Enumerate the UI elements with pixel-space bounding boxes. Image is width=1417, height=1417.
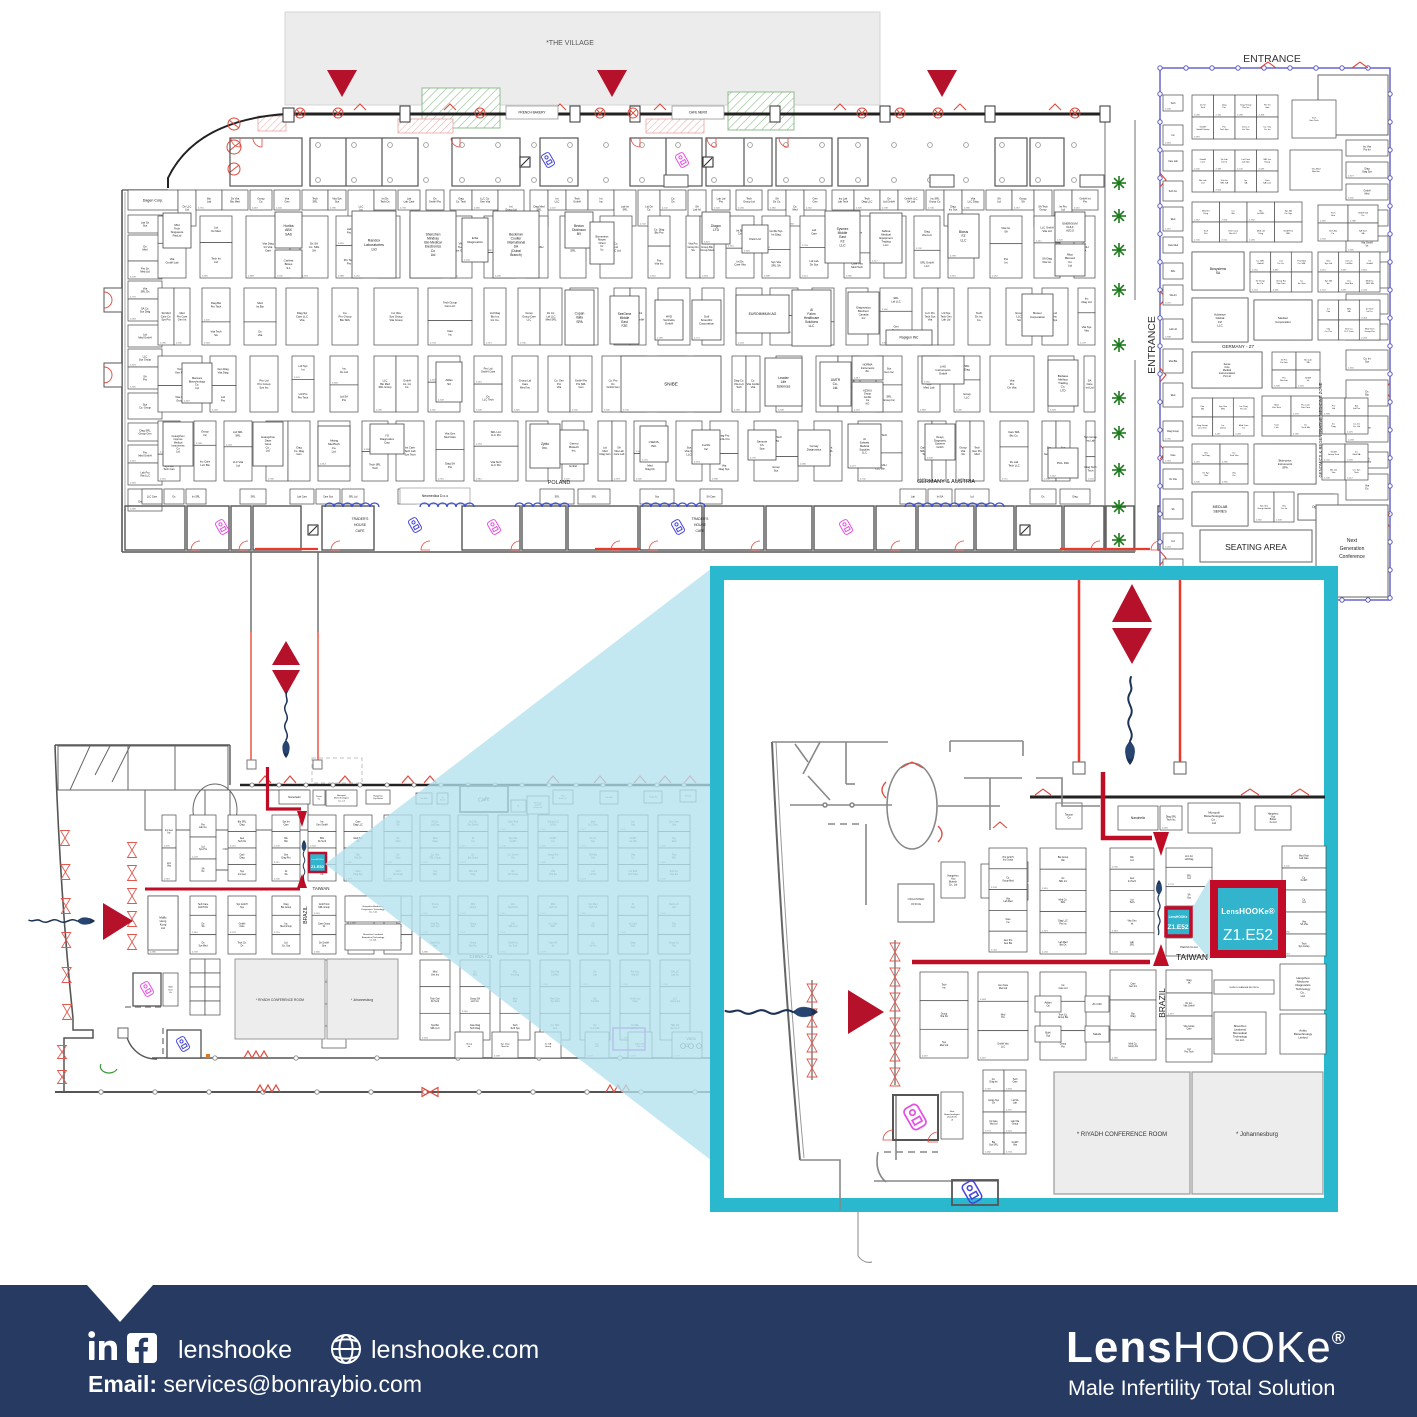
svg-text:Z-132: Z-132	[662, 208, 668, 210]
svg-text:ENTRANCE: ENTRANCE	[1243, 53, 1301, 65]
svg-text:LLC: LLC	[1001, 1047, 1006, 1049]
svg-text:Z-444: Z-444	[464, 260, 470, 262]
svg-text:Z-678: Z-678	[1293, 414, 1299, 416]
svg-text:Gen: Gen	[813, 200, 818, 204]
svg-text:Z-926: Z-926	[1348, 250, 1354, 252]
svg-text:Care: Care	[1013, 1081, 1019, 1084]
svg-text:Sys Vita: Sys Vita	[1260, 504, 1269, 507]
svg-text:Care: Care	[240, 854, 246, 857]
svg-text:Med GmbH: Med GmbH	[138, 336, 151, 340]
svg-text:Care: Care	[447, 329, 453, 333]
svg-text:Z-554: Z-554	[476, 444, 482, 446]
svg-text:SRL: SRL	[251, 495, 256, 498]
svg-text:Dx Ltd: Dx Ltd	[340, 370, 348, 374]
svg-text:Z-467: Z-467	[252, 208, 258, 210]
svg-text:Dx Int: Dx Int	[1200, 103, 1206, 106]
svg-text:Z-585: Z-585	[657, 338, 663, 340]
svg-text:Z-180: Z-180	[274, 879, 280, 881]
svg-text:GmbH: GmbH	[1301, 880, 1308, 882]
svg-text:Z-766: Z-766	[1112, 867, 1118, 869]
svg-text:Gene: Gene	[265, 442, 272, 446]
svg-text:Z-441: Z-441	[1088, 479, 1094, 481]
svg-text:Int Tech: Int Tech	[1128, 880, 1137, 883]
svg-text:GmbH Sys: GmbH Sys	[770, 229, 784, 233]
svg-text:Lab Med: Lab Med	[1004, 901, 1014, 903]
svg-text:Z-470: Z-470	[204, 319, 210, 321]
svg-text:Z-834: Z-834	[1006, 1089, 1012, 1091]
svg-text:Int SA: Int SA	[937, 495, 944, 498]
svg-text:Care Diag: Care Diag	[470, 1024, 481, 1027]
svg-text:Sys: Sys	[887, 367, 892, 371]
svg-text:Ltd Diag: Ltd Diag	[1185, 858, 1194, 861]
svg-text:Z-294: Z-294	[738, 208, 744, 210]
svg-text:Z-932: Z-932	[1249, 220, 1255, 222]
svg-text:Group SA: Group SA	[470, 997, 481, 1000]
svg-text:Int: Int	[1005, 261, 1008, 265]
svg-text:Ltd Sys: Ltd Sys	[299, 364, 309, 368]
svg-text:GmbH: GmbH	[1012, 1142, 1019, 1144]
svg-text:Int LLC: Int LLC	[1345, 259, 1352, 262]
svg-text:Diag Pro: Diag Pro	[282, 857, 292, 860]
svg-text:Diag: Diag	[964, 368, 970, 372]
svg-text:Gmbh: Gmbh	[936, 445, 944, 449]
svg-text:GmbH: GmbH	[569, 464, 577, 468]
svg-text:Z-408: Z-408	[476, 410, 482, 412]
svg-text:Group Pro: Group Pro	[1365, 330, 1376, 333]
svg-text:Tech Sys: Tech Sys	[1220, 129, 1230, 131]
svg-text:Bio Dx: Bio Dx	[1060, 945, 1068, 947]
svg-text:Z-910: Z-910	[192, 932, 198, 934]
svg-text:Male Infertility Total Solutio: Male Infertility Total Solution	[1068, 1376, 1335, 1400]
svg-text:Z-263: Z-263	[1165, 547, 1171, 549]
svg-text:Tech: Tech	[1171, 103, 1177, 105]
svg-text:INC.: INC.	[651, 444, 657, 448]
svg-text:Z-805: Z-805	[314, 952, 320, 954]
svg-text:GENOMICS & REGENERATIVE MEDICI: GENOMICS & REGENERATIVE MEDICINE ZONE	[1318, 382, 1323, 477]
svg-text:Pro: Pro	[448, 465, 453, 469]
svg-text:Z-966: Z-966	[422, 952, 428, 954]
svg-text:Co. Diag: Co. Diag	[654, 227, 665, 231]
svg-text:Ltd: Ltd	[221, 395, 225, 399]
svg-text:Z-469: Z-469	[1347, 460, 1353, 462]
svg-text:Z-807: Z-807	[184, 401, 190, 403]
svg-text:SRL: SRL	[570, 249, 576, 253]
svg-text:Ltd: Ltd	[1068, 264, 1072, 268]
svg-text:Vita Int: Vita Int	[1221, 179, 1228, 182]
svg-text:Co. Int: Co. Int	[1281, 507, 1288, 510]
svg-text:SRL Inc: SRL Inc	[1059, 881, 1068, 883]
svg-text:Group Inc: Group Inc	[883, 398, 895, 402]
svg-text:Z-888: Z-888	[338, 276, 344, 278]
svg-text:Group Tech: Group Tech	[1328, 453, 1340, 456]
svg-text:Dx LLC: Dx LLC	[1242, 126, 1250, 128]
svg-text:Tech Co.: Tech Co.	[237, 943, 246, 945]
svg-text:Inc Group: Inc Group	[1003, 859, 1014, 862]
svg-text:Z-318: Z-318	[130, 483, 136, 485]
svg-text:Z-241: Z-241	[642, 460, 648, 462]
svg-text:LLC: LLC	[862, 451, 867, 455]
svg-text:Z-541: Z-541	[1320, 290, 1326, 292]
svg-text:Care: Care	[1171, 454, 1177, 457]
svg-text:SRL: SRL	[1171, 271, 1176, 273]
svg-text:Care Ltd: Care Ltd	[1059, 987, 1069, 990]
svg-text:* RIYADH CONFERENCE ROOM: * RIYADH CONFERENCE ROOM	[256, 998, 304, 1002]
svg-text:Z-588: Z-588	[1324, 414, 1330, 416]
svg-text:Int Sys: Int Sys	[1203, 471, 1211, 474]
svg-text:S.L: S.L	[286, 266, 291, 270]
svg-text:Z-535: Z-535	[1194, 482, 1200, 484]
svg-text:Diag Sys: Diag Sys	[719, 467, 730, 471]
svg-text:Diagnostics: Diagnostics	[380, 437, 395, 441]
svg-text:Mall: Mall	[168, 987, 173, 989]
svg-text:Lab Tech: Lab Tech	[838, 200, 849, 204]
svg-text:Inc.: Inc.	[542, 446, 547, 450]
svg-text:Diag Tech: Diag Tech	[1085, 465, 1097, 469]
svg-text:Dx Tech: Dx Tech	[431, 1001, 440, 1003]
svg-text:LLC Care: LLC Care	[1344, 330, 1354, 333]
svg-text:SA Care: SA Care	[1263, 182, 1272, 185]
svg-text:Z-400: Z-400	[276, 208, 282, 210]
svg-text:Bio Group: Bio Group	[1058, 856, 1069, 859]
svg-text:Z-234: Z-234	[738, 343, 744, 345]
svg-text:Co. Group: Co. Group	[139, 406, 152, 410]
svg-text:Med Ltd: Med Ltd	[999, 987, 1008, 990]
svg-text:GmbH: GmbH	[1367, 263, 1374, 265]
svg-text:LLC Care: LLC Care	[147, 495, 158, 498]
svg-text:Diag: Diag	[284, 904, 289, 906]
svg-text:SRL GmbH: SRL GmbH	[920, 260, 934, 264]
svg-text:Tech Vita: Tech Vita	[1230, 454, 1240, 457]
svg-text:Tech Co.: Tech Co.	[1058, 1014, 1067, 1016]
svg-text:Biotec: Biotec	[1270, 818, 1277, 821]
svg-text:LLC Diag: LLC Diag	[968, 200, 979, 204]
svg-text:Z-139: Z-139	[130, 277, 136, 279]
svg-text:Sys Tech: Sys Tech	[404, 453, 416, 457]
svg-text:Sys Pro: Sys Pro	[199, 848, 208, 851]
svg-text:SA: SA	[691, 248, 695, 252]
svg-text:Group Gen: Group Gen	[139, 432, 152, 436]
svg-text:Corporation: Corporation	[699, 322, 714, 326]
svg-text:Med: Med	[142, 248, 148, 252]
svg-text:Ltd Pro: Ltd Pro	[299, 392, 308, 396]
svg-text:Guangzhou: Guangzhou	[261, 435, 275, 439]
svg-text:Pro: Pro	[347, 261, 352, 265]
svg-text:Vita: Vita	[751, 385, 756, 389]
svg-text:Vita Group: Vita Group	[389, 318, 403, 322]
svg-text:Bio LLC: Bio LLC	[1229, 233, 1237, 235]
svg-text:Z-972: Z-972	[1006, 1110, 1012, 1112]
svg-text:Conference: Conference	[1339, 554, 1365, 560]
svg-text:SA Lab: SA Lab	[907, 200, 916, 204]
svg-text:Tech Group: Tech Group	[443, 301, 457, 305]
svg-text:Z-758: Z-758	[400, 208, 406, 210]
svg-text:Dx Lab: Dx Lab	[1221, 159, 1229, 161]
svg-text:Z-949: Z-949	[196, 443, 202, 445]
svg-text:Z-683: Z-683	[1259, 169, 1265, 171]
svg-text:Z-706: Z-706	[192, 952, 198, 954]
svg-text:Z-200: Z-200	[1361, 338, 1367, 340]
svg-text:Gen Int: Gen Int	[178, 318, 187, 322]
svg-text:Dx Sys: Dx Sys	[810, 262, 819, 266]
svg-text:Z-482: Z-482	[985, 1152, 991, 1154]
svg-text:Z-190: Z-190	[176, 343, 182, 345]
svg-text:Gen Care: Gen Care	[998, 984, 1009, 987]
svg-text:Co.: Co.	[1006, 878, 1010, 880]
svg-text:Z-887: Z-887	[1273, 270, 1279, 272]
svg-text:Int: Int	[1307, 379, 1310, 382]
svg-text:Z-395: Z-395	[1235, 434, 1241, 436]
svg-text:Vita Inc: Vita Inc	[655, 262, 665, 266]
svg-text:Sys GmbH: Sys GmbH	[236, 904, 247, 906]
svg-text:Z-237: Z-237	[1165, 303, 1171, 305]
svg-text:GmbH Vita: GmbH Vita	[997, 1043, 1009, 1046]
svg-text:GmbH: GmbH	[239, 923, 246, 925]
svg-text:Dx GmbH: Dx GmbH	[319, 943, 329, 945]
svg-text:SA Diag: SA Diag	[1042, 257, 1052, 261]
svg-text:Gen LLC: Gen LLC	[445, 304, 456, 308]
svg-text:Tech: Tech	[1130, 902, 1136, 904]
svg-text:Tech: Tech	[1331, 212, 1336, 214]
svg-text:Diagnostics Technology: Diagnostics Technology	[362, 908, 386, 911]
svg-text:Supplies: Supplies	[859, 447, 870, 451]
svg-text:Oyj: Oyj	[1046, 1034, 1050, 1038]
svg-text:Z-729: Z-729	[1080, 343, 1086, 345]
svg-text:Care: Care	[1131, 982, 1137, 985]
svg-text:Med: Med	[1001, 1014, 1006, 1016]
svg-text:Diag LLC: Diag LLC	[353, 825, 363, 827]
svg-text:Pro GmbH: Pro GmbH	[1003, 856, 1014, 859]
svg-text:Diag Sys: Diag Sys	[1362, 170, 1372, 173]
svg-text:Vita: Vita	[258, 333, 263, 337]
svg-text:Z-277: Z-277	[850, 466, 856, 468]
svg-text:Z-243: Z-243	[192, 857, 198, 859]
svg-text:Diagnostics: Diagnostics	[807, 448, 822, 452]
svg-text:Z-305: Z-305	[1162, 828, 1168, 830]
svg-text:Inc: Inc	[862, 316, 866, 320]
svg-text:ORGANISER: ORGANISER	[908, 897, 925, 901]
svg-text:Med Lab: Med Lab	[924, 386, 935, 390]
svg-text:Z-389: Z-389	[1216, 169, 1222, 171]
svg-text:Care: Care	[1187, 1028, 1193, 1031]
svg-text:Ltd: Ltd	[176, 451, 180, 454]
svg-text:Pro: Pro	[221, 398, 226, 402]
svg-text:Med: Med	[433, 972, 438, 974]
svg-text:BRAZIL: BRAZIL	[1157, 988, 1167, 1018]
svg-text:Z-279: Z-279	[230, 932, 236, 934]
svg-text:Co.Ltd.: Co.Ltd.	[369, 939, 376, 942]
svg-text:Z-645: Z-645	[927, 458, 933, 460]
svg-text:Z-775: Z-775	[130, 297, 136, 299]
svg-text:Park Ltd: Park Ltd	[749, 237, 761, 241]
svg-text:SRL: SRL	[555, 495, 560, 498]
svg-text:GmbH: GmbH	[939, 372, 947, 376]
svg-text:Z-677: Z-677	[1348, 176, 1354, 178]
svg-text:Med: Med	[792, 208, 798, 212]
svg-text:Z-703: Z-703	[802, 245, 808, 247]
svg-text:Med Inc: Med Inc	[1312, 171, 1321, 173]
svg-text:Z-615: Z-615	[1042, 888, 1048, 890]
svg-text:Z-505: Z-505	[604, 410, 610, 412]
svg-text:SRL: SRL	[235, 434, 241, 438]
svg-text:Vita: Vita	[928, 318, 933, 322]
svg-text:Pro: Pro	[347, 230, 352, 234]
svg-text:Vita Diag: Vita Diag	[218, 370, 229, 374]
svg-text:Group Ltd: Group Ltd	[743, 200, 755, 204]
svg-text:Neomedica D.o.o: Neomedica D.o.o	[422, 494, 448, 498]
svg-text:Salofa: Salofa	[1093, 1032, 1101, 1036]
svg-text:Med SA: Med SA	[1353, 453, 1361, 456]
svg-text:SA Care: SA Care	[707, 495, 717, 498]
svg-text:Co. Sys: Co. Sys	[282, 946, 291, 948]
svg-text:Ltd Pro: Ltd Pro	[1353, 407, 1361, 410]
svg-text:Diag Ltd: Diag Ltd	[1081, 300, 1092, 304]
svg-text:Tech: Tech	[942, 985, 948, 987]
svg-text:Z-973: Z-973	[614, 479, 620, 481]
svg-text:Co.: Co.	[259, 200, 263, 204]
svg-text:Tech Bio: Tech Bio	[1329, 230, 1338, 232]
svg-text:Pro Ltd: Pro Ltd	[484, 366, 493, 370]
svg-text:Z-778: Z-778	[750, 458, 756, 460]
svg-text:Bio Lab: Bio Lab	[1280, 380, 1288, 382]
svg-text:LLC: LLC	[965, 396, 970, 400]
svg-text:Med Tech: Med Tech	[1299, 855, 1310, 857]
svg-text:LLC: LLC	[809, 324, 816, 328]
svg-text:Group Med: Group Med	[701, 248, 715, 252]
svg-text:Z-742: Z-742	[860, 479, 866, 481]
svg-text:* RIYADH CONFERENCE ROOM: * RIYADH CONFERENCE ROOM	[1077, 1132, 1167, 1138]
svg-text:Vita Co.: Vita Co.	[1001, 226, 1011, 230]
svg-text:Group Dx: Group Dx	[1128, 1045, 1139, 1048]
svg-text:SUZHOU KANGHE BIOTECH: SUZHOU KANGHE BIOTECH	[1229, 986, 1259, 989]
svg-text:Pvt Ltd: Pvt Ltd	[1223, 375, 1231, 378]
svg-text:Sys SA: Sys SA	[1285, 209, 1293, 212]
svg-text:Z-957: Z-957	[1165, 229, 1171, 231]
svg-text:Tech Inc: Tech Inc	[1167, 818, 1177, 821]
svg-text:Yiyu: Yiyu	[1271, 816, 1276, 818]
svg-text:SRL LLC: SRL LLC	[430, 1028, 440, 1030]
svg-text:SRL: SRL	[320, 838, 325, 840]
svg-text:Vita Tech: Vita Tech	[211, 330, 222, 334]
svg-text:HOUSE: HOUSE	[354, 523, 367, 527]
svg-text:Dx Vita: Dx Vita	[1169, 478, 1177, 481]
svg-text:Z-997: Z-997	[1194, 137, 1200, 139]
svg-text:Z-384: Z-384	[1112, 1058, 1118, 1060]
svg-text:Inc SA: Inc SA	[545, 1042, 552, 1045]
svg-text:Tech Gen: Tech Gen	[163, 467, 175, 471]
svg-text:Biomedical Technology: Biomedical Technology	[362, 937, 385, 939]
svg-text:Z-412: Z-412	[1347, 478, 1353, 480]
svg-text:Med: Med	[1171, 219, 1176, 221]
svg-text:Group: Group	[1039, 208, 1047, 212]
svg-text:Z-920: Z-920	[202, 276, 208, 278]
svg-text:Med: Med	[647, 464, 653, 468]
svg-text:Z-524: Z-524	[1006, 1131, 1012, 1133]
svg-text:Z-305: Z-305	[636, 479, 642, 481]
svg-text:TRADER'S: TRADER'S	[692, 517, 710, 521]
svg-text:Vita: Vita	[1084, 329, 1089, 333]
svg-text:Z-552: Z-552	[430, 410, 436, 412]
svg-text:Z-538: Z-538	[1324, 478, 1330, 480]
svg-text:Co.: Co.	[1300, 280, 1304, 282]
svg-text:Z-817: Z-817	[854, 378, 860, 380]
svg-text:Sys Pro: Sys Pro	[161, 318, 171, 322]
svg-text:Co. Sys: Co. Sys	[1284, 213, 1293, 215]
svg-text:Z-544: Z-544	[1320, 239, 1326, 241]
svg-text:Diag Group: Diag Group	[1240, 103, 1252, 106]
svg-text:FZE: FZE	[621, 324, 627, 328]
svg-text:Group: Group	[963, 392, 971, 396]
svg-text:Care Sys: Care Sys	[323, 495, 334, 498]
svg-text:Z-894: Z-894	[364, 449, 370, 451]
svg-text:Int: Int	[1242, 427, 1245, 430]
svg-text:Gen Diag: Gen Diag	[217, 367, 229, 371]
svg-text:Dx Vita: Dx Vita	[1008, 386, 1017, 390]
svg-text:Z-869: Z-869	[130, 509, 136, 511]
svg-text:Gen: Gen	[322, 946, 327, 948]
svg-text:LLC: LLC	[883, 243, 888, 247]
svg-text:Inc: Inc	[318, 798, 321, 800]
svg-text:Pro Inc: Pro Inc	[1242, 106, 1250, 109]
svg-text:Z-666: Z-666	[474, 208, 480, 210]
svg-text:Z-774: Z-774	[985, 1131, 991, 1133]
svg-text:Next: Next	[1347, 538, 1358, 544]
svg-text:GmbH Lab: GmbH Lab	[166, 260, 180, 264]
svg-text:Z-539: Z-539	[1274, 386, 1280, 388]
svg-text:Branch): Branch)	[510, 253, 522, 257]
svg-text:GmbH Dx: GmbH Dx	[198, 907, 209, 909]
svg-text:Inc: Inc	[704, 447, 709, 451]
svg-text:Care: Care	[1265, 179, 1271, 182]
svg-text:Z-665: Z-665	[1320, 221, 1326, 223]
svg-text:Z-252: Z-252	[992, 276, 998, 278]
svg-text:LLC: LLC	[686, 453, 691, 457]
svg-text:Z-745: Z-745	[1194, 240, 1200, 242]
svg-text:Z-661: Z-661	[130, 461, 136, 463]
svg-text:Bio Ltd: Bio Ltd	[1330, 468, 1338, 471]
svg-text:Care Lab: Care Lab	[1168, 160, 1178, 163]
svg-text:Group Co.: Group Co.	[929, 200, 941, 204]
svg-text:TRADER'S: TRADER'S	[352, 517, 370, 521]
svg-text:SPA: SPA	[576, 320, 583, 324]
svg-text:Sys Int: Sys Int	[282, 821, 289, 824]
svg-text:Diag: Diag	[240, 825, 245, 827]
svg-text:Dx Int: Dx Int	[1221, 161, 1227, 164]
svg-text:Med: Med	[1171, 395, 1176, 397]
svg-text:Bio SRL: Bio SRL	[340, 318, 351, 322]
svg-text:SERIES: SERIES	[1213, 510, 1227, 514]
svg-text:Tech: Tech	[1200, 107, 1205, 109]
svg-text:Int Co.: Int Co.	[1366, 310, 1373, 313]
svg-text:Tech SA: Tech SA	[1301, 426, 1310, 429]
svg-text:Lab Int: Lab Int	[693, 208, 701, 212]
svg-text:Z-820: Z-820	[514, 410, 520, 412]
svg-text:Z-787: Z-787	[985, 1089, 991, 1091]
svg-text:Vita Group: Vita Group	[1184, 1025, 1196, 1028]
svg-text:Shenzhen Landwind: Shenzhen Landwind	[363, 934, 384, 936]
svg-text:Z-435: Z-435	[495, 276, 501, 278]
svg-text:Z-485: Z-485	[800, 464, 806, 466]
svg-text:Int: Int	[1188, 982, 1191, 985]
svg-text:SRL: SRL	[964, 364, 970, 368]
svg-text:Z-199: Z-199	[494, 1056, 500, 1058]
svg-text:Sys: Sys	[335, 200, 340, 204]
svg-text:Z-825: Z-825	[744, 251, 750, 253]
svg-text:Med Int: Med Int	[501, 1045, 509, 1048]
svg-text:Int: Int	[1368, 259, 1371, 262]
svg-text:Z-266: Z-266	[956, 410, 962, 412]
svg-text:GmbH Dx: GmbH Dx	[1283, 230, 1294, 232]
svg-text:Vita Med: Vita Med	[1312, 167, 1321, 170]
